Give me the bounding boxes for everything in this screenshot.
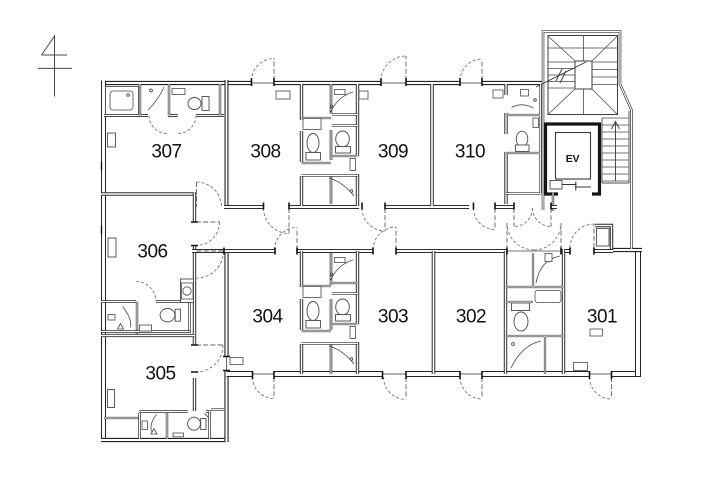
svg-text:304: 304 bbox=[252, 307, 283, 328]
svg-text:307: 307 bbox=[151, 142, 181, 163]
svg-text:310: 310 bbox=[455, 142, 485, 163]
svg-text:EV: EV bbox=[566, 153, 580, 165]
svg-text:306: 306 bbox=[137, 242, 167, 263]
svg-text:305: 305 bbox=[145, 364, 175, 385]
svg-text:309: 309 bbox=[378, 142, 408, 163]
svg-text:308: 308 bbox=[250, 142, 280, 163]
svg-text:301: 301 bbox=[587, 307, 617, 328]
svg-text:302: 302 bbox=[456, 307, 486, 328]
svg-text:303: 303 bbox=[378, 307, 408, 328]
